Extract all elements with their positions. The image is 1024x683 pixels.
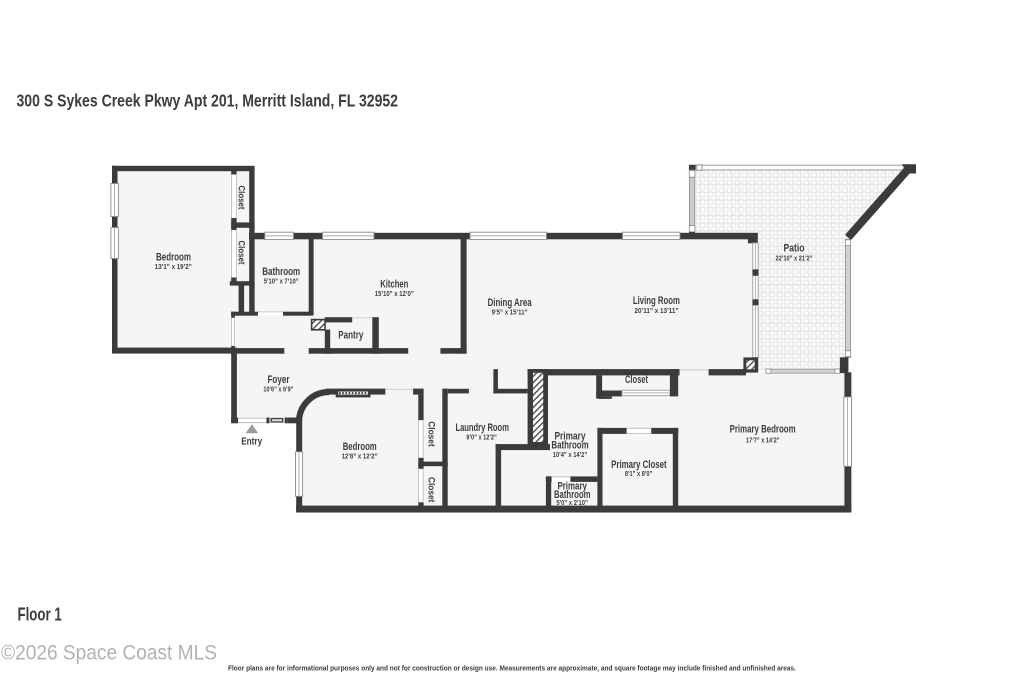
svg-text:5’10” x 7’10”: 5’10” x 7’10” — [264, 277, 299, 286]
svg-text:Primary Bedroom: Primary Bedroom — [730, 423, 796, 435]
svg-text:12’8” x 12’2”: 12’8” x 12’2” — [342, 451, 378, 460]
svg-text:Entry: Entry — [241, 436, 262, 448]
svg-text:10’4” x 14’2”: 10’4” x 14’2” — [553, 450, 588, 459]
svg-text:Closet: Closet — [236, 186, 247, 211]
svg-text:Floor 1: Floor 1 — [18, 604, 62, 625]
svg-text:8’1” x 8’0”: 8’1” x 8’0” — [625, 469, 653, 478]
svg-text:22’10” x 21’2”: 22’10” x 21’2” — [776, 253, 813, 262]
svg-text:5’0” x 2’10”: 5’0” x 2’10” — [556, 498, 588, 507]
svg-text:9’5” x 15’11”: 9’5” x 15’11” — [492, 307, 528, 316]
svg-text:©2026 Space Coast MLS: ©2026 Space Coast MLS — [1, 641, 217, 665]
svg-text:Closet: Closet — [425, 477, 436, 503]
svg-text:15’10” x 12’0”: 15’10” x 12’0” — [375, 289, 414, 298]
svg-text:Closet: Closet — [426, 421, 437, 447]
svg-text:17’7” x 14’2”: 17’7” x 14’2” — [746, 435, 780, 444]
svg-text:20’11” x 13’11”: 20’11” x 13’11” — [635, 306, 679, 315]
svg-text:Pantry: Pantry — [338, 329, 364, 341]
svg-text:13’1” x 19’2”: 13’1” x 19’2” — [155, 262, 192, 271]
svg-text:9’0” x 12’2”: 9’0” x 12’2” — [466, 433, 497, 442]
svg-text:300 S Sykes Creek Pkwy Apt 201: 300 S Sykes Creek Pkwy Apt 201, Merritt … — [17, 90, 399, 110]
svg-text:Floor plans are for informatio: Floor plans are for informational purpos… — [228, 665, 796, 672]
svg-text:Closet: Closet — [625, 374, 648, 386]
svg-text:Closet: Closet — [236, 240, 247, 265]
svg-text:10’6” x 6’9”: 10’6” x 6’9” — [263, 384, 293, 393]
